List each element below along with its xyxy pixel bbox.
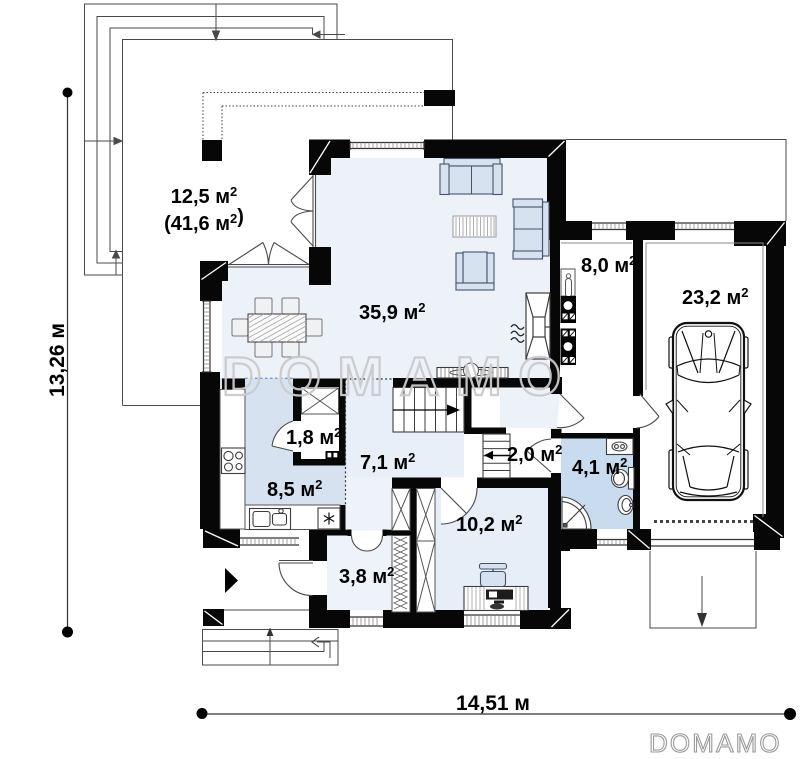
- svg-text:13,26 м: 13,26 м: [46, 323, 69, 397]
- svg-text:35,9 м2: 35,9 м2: [359, 300, 426, 324]
- svg-text:DOMAMO: DOMAMO: [649, 728, 783, 758]
- svg-text:23,2 м2: 23,2 м2: [682, 285, 749, 309]
- svg-text:7,1 м2: 7,1 м2: [360, 450, 415, 474]
- svg-text:DOMAMO: DOMAMO: [222, 345, 580, 407]
- svg-text:2,0 м2: 2,0 м2: [507, 442, 562, 466]
- svg-text:12,5 м2: 12,5 м2: [171, 184, 238, 208]
- svg-text:8,0 м2: 8,0 м2: [581, 253, 636, 277]
- svg-text:3,8 м2: 3,8 м2: [339, 564, 394, 588]
- svg-text:1,8 м2: 1,8 м2: [286, 425, 341, 449]
- svg-text:14,51 м: 14,51 м: [456, 692, 530, 715]
- svg-text:10,2 м2: 10,2 м2: [456, 512, 523, 536]
- svg-text:4,1 м2: 4,1 м2: [572, 455, 627, 479]
- svg-text:8,5 м2: 8,5 м2: [267, 477, 322, 501]
